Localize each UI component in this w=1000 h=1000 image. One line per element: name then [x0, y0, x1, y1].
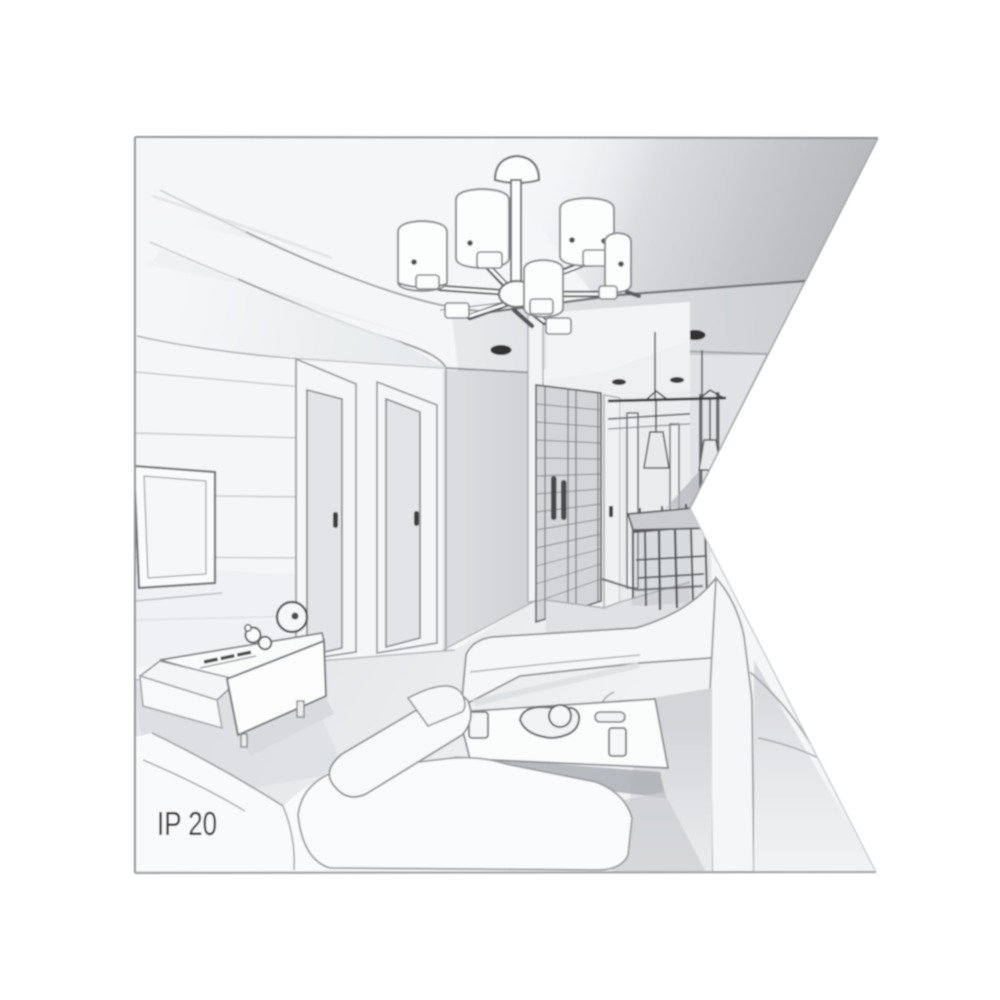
svg-text:IP 20: IP 20 [157, 805, 217, 842]
